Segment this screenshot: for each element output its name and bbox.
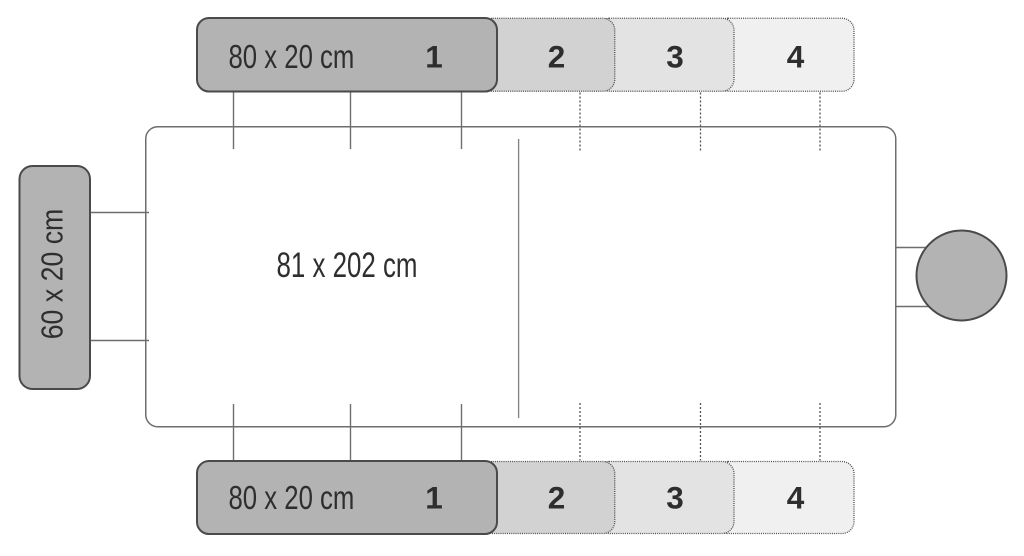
- svg-text:4: 4: [787, 39, 805, 75]
- svg-text:2: 2: [548, 480, 566, 516]
- svg-text:1: 1: [425, 39, 443, 75]
- svg-text:3: 3: [666, 480, 684, 516]
- svg-text:81 x 202 cm: 81 x 202 cm: [277, 245, 418, 285]
- svg-text:2: 2: [548, 39, 566, 75]
- svg-text:4: 4: [787, 480, 805, 516]
- svg-text:60 x 20 cm: 60 x 20 cm: [36, 209, 70, 340]
- svg-text:80 x 20 cm: 80 x 20 cm: [229, 480, 355, 517]
- svg-text:1: 1: [425, 480, 443, 516]
- svg-text:3: 3: [666, 39, 684, 75]
- svg-text:80 x 20 cm: 80 x 20 cm: [229, 39, 355, 76]
